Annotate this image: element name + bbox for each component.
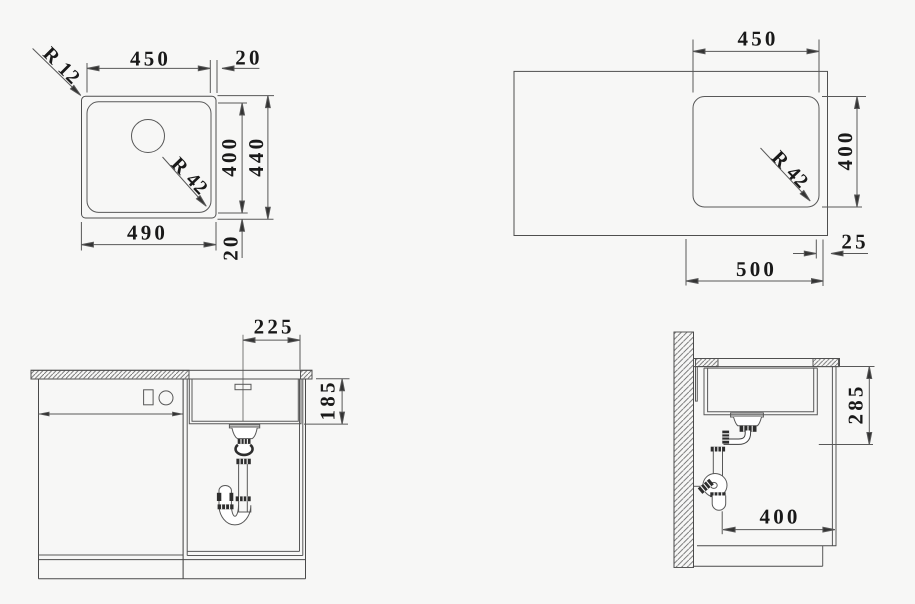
svg-text:225: 225 (254, 315, 295, 339)
svg-text:R 42: R 42 (767, 147, 813, 194)
svg-text:400: 400 (760, 505, 801, 529)
svg-text:R 42: R 42 (166, 153, 212, 200)
svg-text:25: 25 (841, 230, 868, 254)
svg-text:490: 490 (127, 221, 168, 245)
svg-text:R 12: R 12 (38, 43, 84, 89)
svg-text:400: 400 (217, 136, 241, 177)
svg-text:185: 185 (315, 379, 339, 420)
svg-text:285: 285 (844, 383, 868, 424)
svg-text:450: 450 (130, 47, 171, 71)
svg-text:400: 400 (833, 129, 857, 170)
svg-text:440: 440 (244, 136, 268, 177)
svg-text:450: 450 (738, 27, 779, 51)
svg-text:20: 20 (235, 46, 262, 70)
svg-text:20: 20 (218, 233, 242, 260)
svg-text:500: 500 (736, 257, 777, 281)
